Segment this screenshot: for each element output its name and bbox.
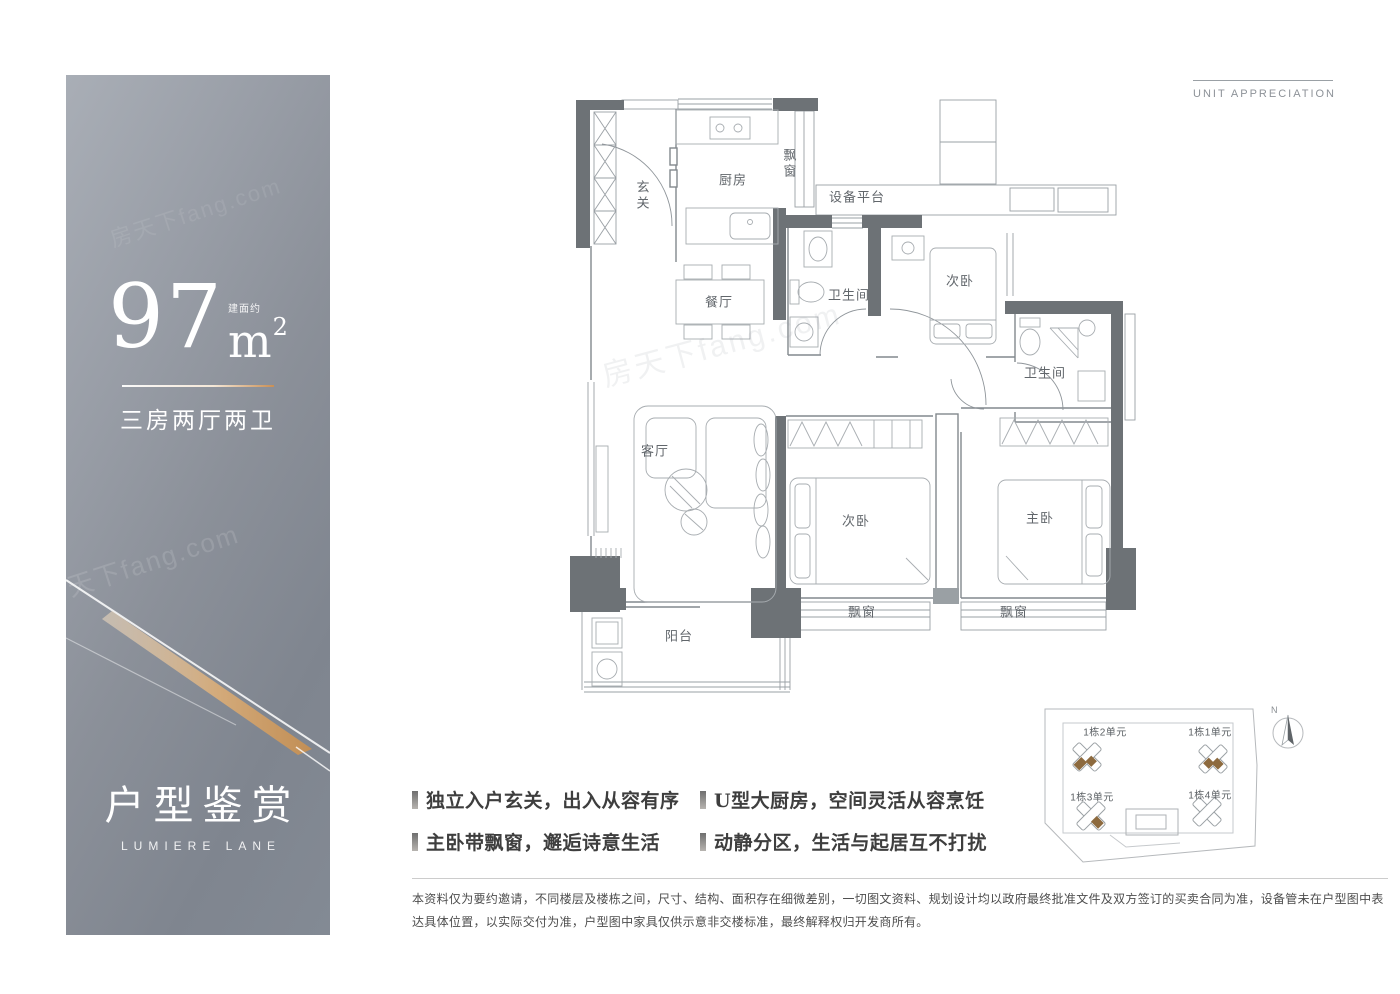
feature-text: 动静分区，生活与起居互不打扰 [714, 828, 987, 855]
room-label-entry: 玄关 [633, 180, 652, 212]
building-b3 [1076, 801, 1106, 831]
feature-item: 动静分区，生活与起居互不打扰 [700, 828, 987, 855]
room-label-bedroom2: 次卧 [842, 511, 870, 530]
feature-item: 独立入户玄关，出入从容有序 [412, 786, 690, 813]
panel-title: 户型鉴赏 [66, 773, 330, 831]
layout-text: 三房两厅两卫 [66, 401, 330, 435]
building-b1 [1198, 744, 1228, 774]
area-unit: m [228, 314, 272, 368]
unit-appreciation-caption: UNIT APPRECIATION [1193, 80, 1333, 100]
gold-divider [122, 385, 274, 387]
compass-icon: N [1271, 705, 1303, 748]
feature-item: 主卧带飘窗，邂逅诗意生活 [412, 828, 690, 855]
room-label-baywindow-b2: 飘窗 [1000, 602, 1028, 621]
disclaimer: 本资料仅为要约邀请，不同楼层及楼栋之间，尺寸、结构、面积存在细微差别，一切图文资… [412, 878, 1388, 935]
unit-label-b3: 1栋3单元 [1070, 789, 1114, 804]
room-label-kitchen: 厨房 [719, 170, 747, 189]
room-label-dining: 餐厅 [705, 292, 733, 311]
bullet-bar-icon [700, 833, 706, 851]
panel-subtitle: LUMIERE LANE [66, 839, 330, 853]
area-value: 97 [108, 273, 224, 361]
room-label-bedroom-top: 次卧 [946, 271, 974, 290]
area-block: 97 建面约 m2 [66, 273, 330, 361]
room-label-baywindow-top: 飘窗 [780, 148, 799, 180]
bullet-bar-icon [412, 833, 418, 851]
room-label-baywindow-b1: 飘窗 [848, 602, 876, 621]
unit-label-b4: 1栋4单元 [1188, 787, 1232, 802]
bullet-bar-icon [700, 791, 706, 809]
siteplan-drawing: N [1040, 695, 1310, 880]
bullet-bar-icon [412, 791, 418, 809]
building-b4 [1192, 797, 1222, 827]
area-sup: 2 [273, 313, 288, 341]
room-label-master: 主卧 [1026, 508, 1054, 527]
building-b2 [1072, 742, 1102, 772]
floorplan: 玄关 厨房 飘窗 设备平台 餐厅 卫生间 次卧 卫生间 客厅 次卧 主卧 阳台 … [558, 90, 1140, 712]
room-label-equipment-platform: 设备平台 [829, 187, 885, 206]
entry-closet [594, 112, 616, 244]
feature-text: 主卧带飘窗，邂逅诗意生活 [426, 828, 660, 855]
room-label-balcony: 阳台 [665, 626, 693, 645]
unit-label-b2: 1栋2单元 [1083, 724, 1127, 739]
brand-panel: 房天下fang.com 房天下fang.com 97 建面约 m2 三房两厅两卫… [66, 75, 330, 935]
feature-text: U型大厨房，空间灵活从容烹饪 [714, 786, 985, 813]
room-label-bath2: 卫生间 [1024, 363, 1066, 382]
area-prefix: 建面约 [228, 300, 261, 315]
siteplan: N 1栋2单元 1栋1单元 1栋3单元 1栋4单元 [1040, 695, 1310, 880]
room-label-living: 客厅 [641, 441, 669, 460]
poster: 房天下fang.com 房天下fang.com 97 建面约 m2 三房两厅两卫… [0, 0, 1400, 994]
unit-label-b1: 1栋1单元 [1188, 724, 1232, 739]
feature-text: 独立入户玄关，出入从容有序 [426, 786, 680, 813]
feature-item: U型大厨房，空间灵活从容烹饪 [700, 786, 987, 813]
feature-list: 独立入户玄关，出入从容有序 U型大厨房，空间灵活从容烹饪 主卧带飘窗，邂逅诗意生… [412, 786, 978, 855]
compass-north-label: N [1271, 705, 1278, 715]
